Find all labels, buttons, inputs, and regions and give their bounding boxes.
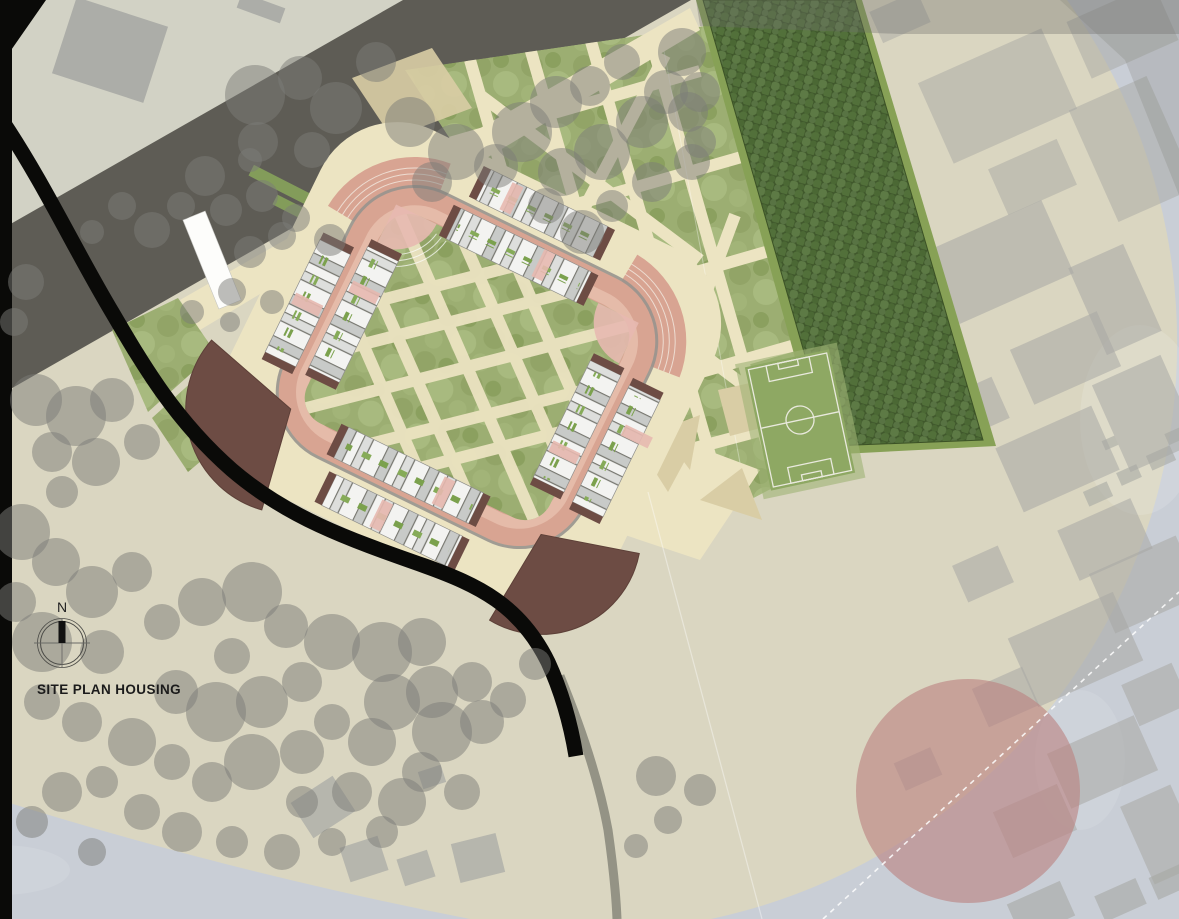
tree-canopy [192,762,232,802]
tree-canopy [178,578,226,626]
tree-canopy [398,618,446,666]
tree-canopy [264,604,308,648]
tree-canopy [684,774,716,806]
tree-canopy [180,300,204,324]
tree-canopy [490,682,526,718]
tree-canopy [519,648,551,680]
tree-canopy [528,188,564,224]
tree-canopy [560,210,604,254]
tree-canopy [310,82,362,134]
tree-canopy [654,806,682,834]
tree-canopy [632,162,672,202]
tree-canopy [32,432,72,472]
tree-canopy [42,772,82,812]
site-plan-drawing: N SITE PLAN HOUSING [0,0,1179,919]
tree-canopy [356,42,396,82]
tree-canopy [210,194,242,226]
tree-canopy [46,476,78,508]
tree-canopy [78,838,106,866]
tree-canopy [314,224,346,256]
tree-canopy [124,424,160,460]
map-title: SITE PLAN HOUSING [37,682,181,697]
tree-canopy [246,180,278,212]
tree-canopy [260,290,284,314]
tree-canopy [185,156,225,196]
tree-canopy [134,212,170,248]
tree-canopy [167,192,195,220]
tree-canopy [332,772,372,812]
tree-canopy [282,662,322,702]
tree-canopy [366,816,398,848]
tree-canopy [90,378,134,422]
tree-canopy [238,148,262,172]
tree-canopy [225,65,285,125]
tree-canopy [282,204,310,232]
tree-canopy [220,312,240,332]
tree-canopy [234,236,266,268]
tree-canopy [86,766,118,798]
tree-canopy [72,438,120,486]
tree-canopy [412,162,452,202]
tree-canopy [658,28,706,76]
west-edge-road [0,0,12,919]
tree-canopy [286,786,318,818]
tree-canopy [66,566,118,618]
tree-canopy [624,834,648,858]
tree-canopy [224,734,280,790]
tree-canopy [80,630,124,674]
tree-canopy [162,812,202,852]
tree-canopy [8,264,44,300]
tree-canopy [668,92,708,132]
north-arrow [59,621,66,643]
tree-canopy [684,126,716,158]
tree-canopy [294,132,330,168]
tree-canopy [318,828,346,856]
tree-canopy [348,718,396,766]
tree-canopy [0,308,28,336]
tree-canopy [144,604,180,640]
tree-canopy [596,190,628,222]
tree-canopy [314,704,350,740]
tree-canopy [112,552,152,592]
site-plan-canvas: N SITE PLAN HOUSING [0,0,1179,919]
tree-canopy [280,730,324,774]
tree-canopy [80,220,104,244]
north-label: N [57,599,67,615]
tree-canopy [16,806,48,838]
focus-circle [856,679,1080,903]
tree-canopy [452,662,492,702]
tree-canopy [604,44,640,80]
tree-canopy [264,834,300,870]
tree-canopy [218,278,246,306]
tree-canopy [636,756,676,796]
tree-canopy [304,614,360,670]
tree-canopy [108,192,136,220]
tree-canopy [385,97,435,147]
tree-canopy [62,702,102,742]
tree-canopy [154,744,190,780]
tree-canopy [214,638,250,674]
tree-canopy [444,774,480,810]
tree-canopy [216,826,248,858]
tree-canopy [570,66,610,106]
tree-canopy [108,718,156,766]
tree-canopy [124,794,160,830]
